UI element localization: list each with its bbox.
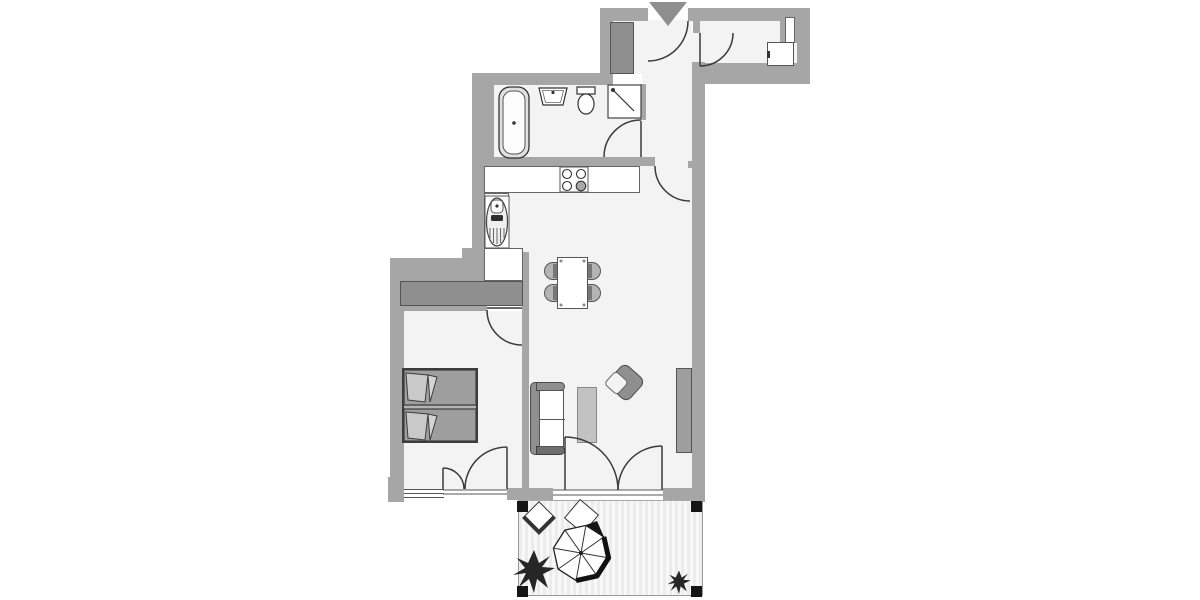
double-bed — [402, 368, 478, 443]
dining-table — [557, 257, 588, 309]
wall-storage-door-jamb — [693, 21, 700, 33]
floor-bathroom-doorway — [640, 120, 646, 157]
wall-bathroom-bottom — [472, 157, 655, 166]
wall-southwest-corner — [388, 477, 404, 502]
washing-machine — [767, 42, 794, 66]
entrance-arrow-marker — [649, 2, 687, 26]
dining-chair-left-bottom — [544, 284, 558, 302]
wall-bathroom-right — [640, 84, 646, 120]
wall-bathroom-duct-shaft — [485, 84, 494, 158]
floor-storage-doorway — [692, 33, 700, 63]
sideboard — [676, 368, 692, 453]
floor-bathroom — [494, 85, 640, 157]
coffee-table — [577, 387, 597, 443]
wall-living-entry-jamb — [688, 161, 693, 168]
wall-bedroom-north — [403, 306, 487, 311]
bedroom-wardrobe — [400, 281, 523, 306]
bed-mattress-divider — [404, 406, 476, 409]
wall-storage-bottom — [700, 63, 810, 84]
bedroom-window-opening — [404, 489, 444, 498]
wall-pier-bottom-right — [663, 488, 705, 500]
wall-kitchen-stub — [462, 248, 484, 260]
sofa — [530, 382, 565, 455]
wall-bedroom-east — [522, 252, 529, 490]
terrace-post-bottom-right — [691, 586, 702, 597]
sofa-cushion-divider — [540, 419, 565, 420]
storage-wall-niche — [785, 17, 795, 43]
floor-plan — [0, 0, 1200, 600]
wall-step-band-outer — [390, 258, 484, 281]
wall-right-outer — [692, 62, 705, 502]
washing-machine-hinge — [767, 51, 770, 58]
wall-pier-between-doors — [507, 488, 553, 500]
terrace-post-top-right — [691, 501, 702, 512]
kitchen-counter-top-run — [484, 166, 640, 193]
floor-corridor — [642, 74, 692, 166]
sofa-seat — [539, 390, 564, 447]
floor-dining-area — [509, 193, 692, 255]
dining-chair-left-top — [544, 262, 558, 280]
hall-closet — [610, 22, 634, 74]
sofa-armrest-bottom — [536, 446, 565, 455]
kitchen-counter-corner — [484, 248, 523, 281]
terrace-post-top-left — [517, 501, 528, 512]
terrace-post-bottom-left — [517, 586, 528, 597]
